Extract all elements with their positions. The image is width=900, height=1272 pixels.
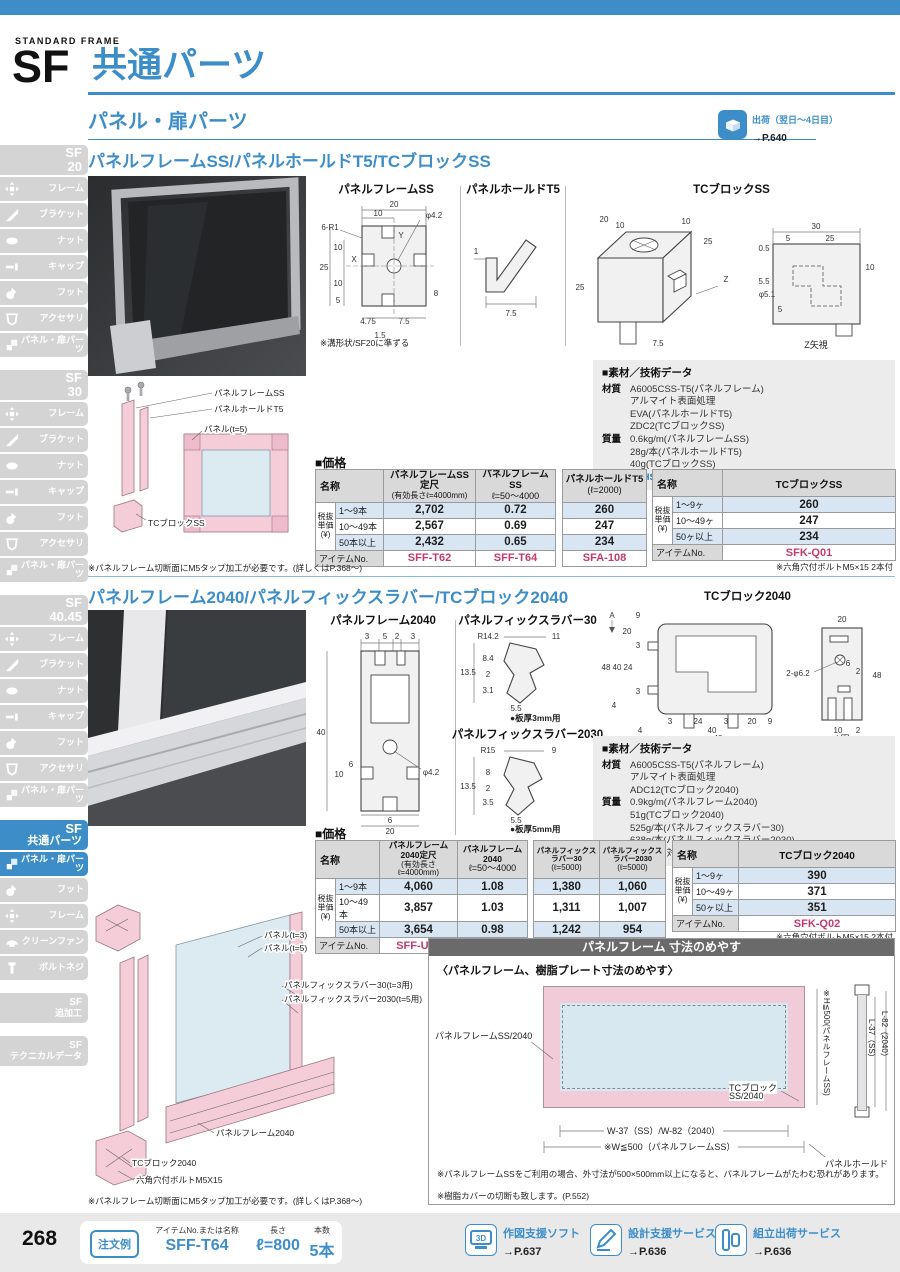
- svg-text:7.5: 7.5: [398, 317, 410, 326]
- panel-hold-t5-drawing: 1 7.5: [466, 196, 560, 326]
- exploded-view-2: パネル(t=3) パネル(t=5) パネルフィックスラバー30(t=3用) パネ…: [88, 845, 425, 1210]
- price-table-1: 名称 パネルフレームSS定尺(有効長さℓ=4000mm) パネルフレームSSℓ=…: [315, 469, 647, 567]
- section-rule: [88, 139, 816, 140]
- sidebar-item-cap[interactable]: キャップ: [0, 480, 88, 504]
- sidebar-item-cap[interactable]: キャップ: [0, 705, 88, 729]
- svg-text:パネル(t=5): パネル(t=5): [264, 943, 307, 953]
- drawing-divider: [565, 186, 566, 346]
- sidebar-group-sftech: SFテクニカルデータ: [0, 1036, 88, 1066]
- section-divider: [88, 576, 895, 577]
- svg-text:10: 10: [682, 217, 691, 226]
- svg-text:X: X: [351, 255, 357, 264]
- svg-text:40: 40: [613, 663, 622, 672]
- sidebar-item-bolt[interactable]: ボルトネジ: [0, 956, 88, 980]
- guide-width-label: W-37（SS）/W-82（2040）: [604, 1124, 723, 1137]
- bolt-note-1: ※六角穴付ボルトM5×15 2本付: [776, 561, 893, 573]
- svg-text:4: 4: [612, 701, 617, 710]
- design-pen-icon: [590, 1224, 622, 1256]
- accessory-icon: [5, 762, 20, 777]
- sidebar-item-frame[interactable]: フレーム: [0, 177, 88, 201]
- sidebar-item-frame[interactable]: フレーム: [0, 402, 88, 426]
- guide-l82-label: L-82（2040）: [879, 1011, 890, 1061]
- svg-text:2: 2: [486, 784, 491, 793]
- svg-text:6: 6: [388, 816, 393, 825]
- svg-text:4: 4: [638, 726, 643, 735]
- sidebar-group-head-sf4045[interactable]: SF40.45: [0, 595, 88, 625]
- page-title: 共通パーツ: [92, 48, 266, 83]
- svg-text:13.5: 13.5: [460, 782, 476, 791]
- svg-text:6-R1: 6-R1: [321, 223, 339, 232]
- shipping-page-ref: →P.640: [752, 133, 787, 144]
- svg-text:0.5: 0.5: [758, 244, 770, 253]
- sidebar-group-sf4045: SF40.45 フレーム ブラケット ナット キャップ フット アクセサリ パネ…: [0, 595, 88, 807]
- drawing-divider: [460, 186, 461, 346]
- svg-text:3: 3: [668, 717, 673, 726]
- bracket-icon: [5, 433, 20, 448]
- order-example-badge: 注文例: [90, 1230, 139, 1258]
- svg-text:8: 8: [486, 768, 491, 777]
- bracket-icon: [5, 658, 20, 673]
- sidebar-group-head-sftech[interactable]: SFテクニカルデータ: [0, 1036, 88, 1066]
- sidebar-group-head-sf30[interactable]: SF30: [0, 370, 88, 400]
- assembly-frame-icon: [715, 1224, 747, 1256]
- svg-text:3: 3: [724, 717, 729, 726]
- svg-text:20: 20: [838, 615, 847, 624]
- header-rule: [88, 92, 895, 95]
- sidebar-group-sfcommon: SF共通パーツ パネル・扉パーツ フット フレーム クリーンファン ボルトネジ: [0, 820, 88, 980]
- svg-text:R15: R15: [481, 746, 496, 755]
- sidebar-item-cap[interactable]: キャップ: [0, 255, 88, 279]
- svg-text:6: 6: [846, 659, 851, 668]
- drawing-title-rubber-2030: パネルフィックスラバー2030: [450, 726, 605, 742]
- guide-tc-label-line2: SS/2040: [729, 1091, 764, 1101]
- order-field-item: アイテムNo.または名称 SFF-T64: [142, 1225, 252, 1255]
- sidebar-item-bracket[interactable]: ブラケット: [0, 203, 88, 227]
- svg-text:パネル(t=5): パネル(t=5): [204, 424, 247, 434]
- drawing-note-1a: ※溝形状/SF20に準ずる: [320, 337, 409, 349]
- guide-l37-label: L-37（SS）: [866, 1019, 877, 1062]
- sidebar-item-panel[interactable]: パネル・扉パーツ: [0, 333, 88, 357]
- accessory-icon: [5, 312, 20, 327]
- svg-text:φ4.2: φ4.2: [426, 211, 443, 220]
- sidebar-item-nut[interactable]: ナット: [0, 454, 88, 478]
- shipping-badge[interactable]: 出荷（翌日～4日目） →P.640: [718, 110, 838, 146]
- svg-text:20: 20: [390, 200, 399, 209]
- drawing-title-tc-block-ss: TCブロックSS: [568, 181, 895, 197]
- foot-icon: [5, 286, 20, 301]
- dimension-guide-box: パネルフレーム 寸法のめやす 〈パネルフレーム、樹脂プレート寸法のめやす〉 パネ…: [428, 938, 895, 1205]
- nut-icon: [5, 684, 20, 699]
- service-drawing-software[interactable]: 3D 作図支援ソフト→P.637: [465, 1224, 580, 1260]
- guide-note-2: ※樹脂カバーの切断も致します。(P.552): [437, 1191, 885, 1203]
- foot-icon: [5, 736, 20, 751]
- cap-icon: [5, 260, 20, 275]
- svg-text:5: 5: [336, 296, 341, 305]
- sidebar-item-frame[interactable]: フレーム: [0, 627, 88, 651]
- svg-text:10: 10: [374, 209, 383, 218]
- nut-icon: [5, 234, 20, 249]
- svg-text:2-φ6.2: 2-φ6.2: [786, 669, 810, 678]
- sidebar-item-nut[interactable]: ナット: [0, 229, 88, 253]
- series-code: SF: [12, 44, 70, 89]
- svg-text:25: 25: [826, 234, 835, 243]
- foot-icon: [5, 511, 20, 526]
- sidebar-item-foot[interactable]: フット: [0, 506, 88, 530]
- svg-text:A: A: [609, 611, 615, 620]
- guide-note-1: ※パネルフレームSSをご利用の場合、外寸法が500×500mm以上になると、パネ…: [437, 1169, 885, 1181]
- svg-text:パネルフレームSS: パネルフレームSS: [214, 388, 285, 398]
- svg-text:8: 8: [434, 289, 439, 298]
- tap-note-1: ※パネルフレーム切断面にM5タップ加工が必要です。(詳しくはP.368～): [88, 562, 362, 574]
- svg-text:TCブロックSS: TCブロックSS: [148, 518, 205, 528]
- order-field-qty: 本数 5本: [304, 1225, 340, 1261]
- svg-text:Y: Y: [398, 231, 404, 240]
- fan-icon: [5, 935, 20, 950]
- svg-text:3.1: 3.1: [482, 686, 494, 695]
- frame-icon: [5, 182, 20, 197]
- svg-text:3.5: 3.5: [482, 798, 494, 807]
- svg-text:3: 3: [636, 641, 641, 650]
- tap-note-2: ※パネルフレーム切断面にM5タップ加工が必要です。(詳しくはP.368～): [88, 1195, 362, 1207]
- sidebar-group-head-sf20[interactable]: SF20: [0, 145, 88, 175]
- svg-text:2: 2: [856, 667, 861, 676]
- sidebar: SF20 フレーム ブラケット ナット キャップ フット アクセサリ パネル・扉…: [0, 145, 88, 1079]
- svg-text:パネルフレーム2040: パネルフレーム2040: [216, 1128, 294, 1138]
- shipping-label: 出荷（翌日～4日目）: [752, 115, 838, 125]
- sidebar-item-panel[interactable]: パネル・扉パーツ: [0, 783, 88, 807]
- guide-frame-label: パネルフレームSS/2040: [435, 1029, 532, 1042]
- svg-text:3: 3: [365, 632, 370, 641]
- svg-text:4.75: 4.75: [360, 317, 376, 326]
- product-photo-1: [88, 176, 306, 376]
- svg-text:8.4: 8.4: [482, 654, 494, 663]
- frame-icon: [5, 909, 20, 924]
- order-field-length: 長さ ℓ=800: [252, 1225, 304, 1255]
- sidebar-item-panel-active[interactable]: パネル・扉パーツ: [0, 852, 88, 876]
- svg-text:25: 25: [320, 263, 329, 272]
- product-photo-2: [88, 610, 306, 826]
- svg-text:9: 9: [636, 611, 641, 620]
- svg-text:2: 2: [856, 726, 861, 735]
- svg-text:9: 9: [768, 717, 773, 726]
- svg-text:20: 20: [623, 627, 632, 636]
- sidebar-group-head-sfcommon[interactable]: SF共通パーツ: [0, 820, 88, 850]
- bracket-icon: [5, 208, 20, 223]
- drawing-title-rubber-30: パネルフィックスラバー30: [455, 612, 600, 628]
- svg-text:24: 24: [624, 663, 633, 672]
- sidebar-item-accessory[interactable]: アクセサリ: [0, 532, 88, 556]
- exploded-view-1: パネルフレームSS パネルホールドT5 パネル(t=5) TCブロックSS: [88, 380, 310, 568]
- svg-text:9: 9: [552, 746, 557, 755]
- sidebar-item-foot[interactable]: フット: [0, 878, 88, 902]
- panel-icon: [5, 788, 20, 803]
- svg-text:7.5: 7.5: [652, 339, 664, 348]
- svg-text:R14.2: R14.2: [477, 632, 499, 641]
- panel-icon: [5, 857, 20, 872]
- nut-icon: [5, 459, 20, 474]
- svg-text:5: 5: [786, 234, 791, 243]
- panel-fix-rubber-2030-drawing: R15 9 13.5 8 2 3.5 5.5: [460, 741, 600, 825]
- svg-text:3: 3: [636, 687, 641, 696]
- price-table-tc-ss: 名称TCブロックSS 税抜単価(¥) 1～9ヶ260 10～49ヶ247 50ヶ…: [652, 469, 896, 561]
- section-title: パネル・扉パーツ: [88, 105, 248, 134]
- svg-text:20: 20: [600, 215, 609, 224]
- panel-frame-2040-drawing: 3 5 2 3 40 10 6 φ4.2 6 20: [313, 627, 453, 837]
- service-design-support[interactable]: 設計支援サービス→P.636: [590, 1224, 716, 1260]
- sidebar-item-panel[interactable]: パネル・扉パーツ: [0, 558, 88, 582]
- svg-text:パネル(t=3): パネル(t=3): [264, 930, 307, 940]
- svg-text:30: 30: [812, 222, 821, 231]
- accessory-icon: [5, 537, 20, 552]
- page-footer: 268 注文例 アイテムNo.または名称 SFF-T64 長さ ℓ=800 本数…: [0, 1213, 900, 1272]
- svg-text:20: 20: [748, 717, 757, 726]
- svg-text:25: 25: [704, 237, 713, 246]
- svg-text:25: 25: [576, 283, 585, 292]
- panel-icon: [5, 338, 20, 353]
- svg-text:48: 48: [873, 671, 882, 680]
- svg-text:10: 10: [335, 770, 344, 779]
- sidebar-item-bracket[interactable]: ブラケット: [0, 428, 88, 452]
- sidebar-item-accessory[interactable]: アクセサリ: [0, 757, 88, 781]
- svg-text:5: 5: [383, 632, 388, 641]
- sidebar-item-nut[interactable]: ナット: [0, 679, 88, 703]
- 3d-software-icon: 3D: [465, 1224, 497, 1256]
- svg-text:パネルフィックスラバー2030(t=5用): パネルフィックスラバー2030(t=5用): [284, 994, 422, 1004]
- drawing-title-panel-hold-t5: パネルホールドT5: [464, 181, 562, 197]
- svg-text:六角穴付ボルトM5X15: 六角穴付ボルトM5X15: [136, 1175, 223, 1185]
- svg-text:3: 3: [411, 632, 416, 641]
- drawing-title-panel-frame-2040: パネルフレーム2040: [313, 612, 453, 628]
- guide-width-limit-label: ※W≦500（パネルフレームSS）: [601, 1140, 738, 1153]
- svg-text:11: 11: [552, 632, 561, 641]
- bolt-icon: [5, 961, 20, 976]
- svg-text:TCブロック2040: TCブロック2040: [132, 1158, 197, 1168]
- svg-text:5.5: 5.5: [758, 277, 770, 286]
- tc-block-2040-drawing: A 9 20 3 48 40 24 3 4 3 24 3 20 9 40 48 …: [600, 602, 895, 742]
- svg-text:φ5.1: φ5.1: [759, 290, 776, 299]
- svg-text:Z矢視: Z矢視: [804, 339, 828, 350]
- subsection-title-2: パネルフレーム2040/パネルフィックスラバー/TCブロック2040: [88, 583, 568, 608]
- svg-text:5: 5: [778, 305, 783, 314]
- sidebar-group-sf30: SF30 フレーム ブラケット ナット キャップ フット アクセサリ パネル・扉…: [0, 370, 88, 582]
- svg-text:10: 10: [334, 243, 343, 252]
- svg-text:48: 48: [602, 663, 611, 672]
- shipping-box-icon: [718, 110, 747, 139]
- top-accent-bar: [0, 0, 900, 15]
- svg-text:2: 2: [486, 670, 491, 679]
- cap-icon: [5, 485, 20, 500]
- svg-text:13.5: 13.5: [460, 668, 476, 677]
- svg-text:1: 1: [474, 247, 479, 256]
- frame-icon: [5, 407, 20, 422]
- price-table-tc-2040: 名称TCブロック2040 税抜単価(¥) 1～9ヶ390 10～49ヶ371 5…: [672, 840, 896, 932]
- svg-text:3D: 3D: [476, 1234, 486, 1243]
- svg-text:10: 10: [866, 263, 875, 272]
- svg-text:7.5: 7.5: [505, 309, 517, 318]
- svg-text:40: 40: [317, 728, 326, 737]
- page-number: 268: [22, 1227, 57, 1251]
- panel-icon: [5, 563, 20, 578]
- svg-text:φ4.2: φ4.2: [423, 768, 440, 777]
- thickness-note-2030: ●板厚5mm用: [510, 823, 560, 835]
- svg-text:10: 10: [334, 279, 343, 288]
- sidebar-item-foot[interactable]: フット: [0, 281, 88, 305]
- drawing-title-panel-frame-ss: パネルフレームSS: [316, 181, 456, 197]
- svg-text:10: 10: [616, 221, 625, 230]
- sidebar-item-foot[interactable]: フット: [0, 731, 88, 755]
- sidebar-item-frame[interactable]: フレーム: [0, 904, 88, 928]
- sidebar-group-head-sfextra[interactable]: SF追加工: [0, 993, 88, 1023]
- svg-text:パネルフィックスラバー30(t=3用): パネルフィックスラバー30(t=3用): [284, 980, 413, 990]
- sidebar-group-sf20: SF20 フレーム ブラケット ナット キャップ フット アクセサリ パネル・扉…: [0, 145, 88, 357]
- svg-text:6: 6: [349, 760, 354, 769]
- guide-height-limit-label: ※H≦500(パネルフレームSS): [821, 989, 832, 1096]
- catalog-page: STANDARD FRAME SF 共通パーツ パネル・扉パーツ 出荷（翌日～4…: [0, 0, 900, 1272]
- frame-icon: [5, 632, 20, 647]
- service-assembly-shipping[interactable]: 組立出荷サービス→P.636: [715, 1224, 841, 1260]
- sidebar-item-bracket[interactable]: ブラケット: [0, 653, 88, 677]
- foot-icon: [5, 883, 20, 898]
- svg-text:20: 20: [386, 827, 395, 836]
- panel-frame-ss-drawing: 20 10 6-R1 φ4.2 Y X 25 10 10 5 8 4.75 7.…: [316, 196, 458, 344]
- cap-icon: [5, 710, 20, 725]
- panel-fix-rubber-30-drawing: R14.2 11 13.5 8.4 2 3.1 5.5: [460, 627, 600, 713]
- thickness-note-30: ●板厚3mm用: [510, 712, 560, 724]
- sidebar-group-sfextra: SF追加工: [0, 993, 88, 1023]
- subsection-title-1: パネルフレームSS/パネルホールドT5/TCブロックSS: [88, 147, 491, 172]
- sidebar-item-cleanfan[interactable]: クリーンファン: [0, 930, 88, 954]
- svg-text:2: 2: [395, 632, 400, 641]
- svg-text:パネルホールドT5: パネルホールドT5: [214, 404, 284, 414]
- order-example-panel: 注文例 アイテムNo.または名称 SFF-T64 長さ ℓ=800 本数 5本: [80, 1221, 342, 1264]
- sidebar-item-accessory[interactable]: アクセサリ: [0, 307, 88, 331]
- svg-text:24: 24: [694, 717, 703, 726]
- tc-block-ss-drawing: 20 10 10 25 25 Z 7.5 30 5 25 0.5 5.5 φ5.…: [568, 196, 895, 352]
- svg-text:Z: Z: [724, 275, 729, 284]
